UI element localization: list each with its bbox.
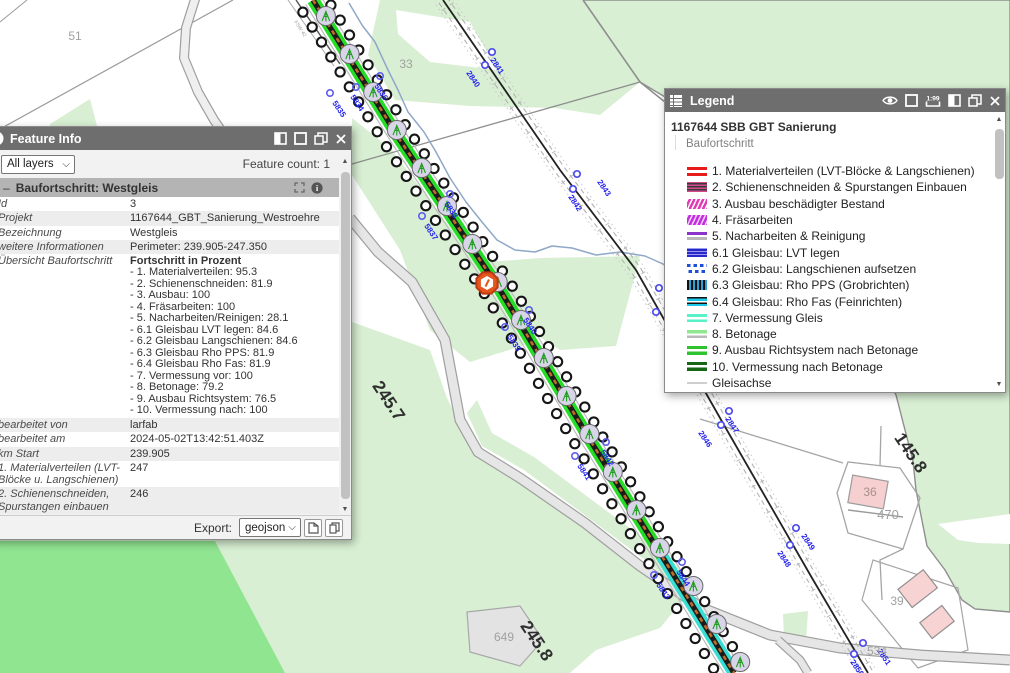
svg-text:470: 470	[877, 507, 899, 522]
svg-text:33: 33	[399, 57, 413, 71]
svg-text:1:99: 1:99	[926, 96, 939, 103]
svg-text:36: 36	[863, 485, 877, 499]
svg-text:51: 51	[68, 29, 82, 43]
svg-text:39: 39	[890, 594, 904, 608]
svg-text:534: 534	[867, 644, 887, 658]
svg-text:649: 649	[494, 630, 514, 644]
